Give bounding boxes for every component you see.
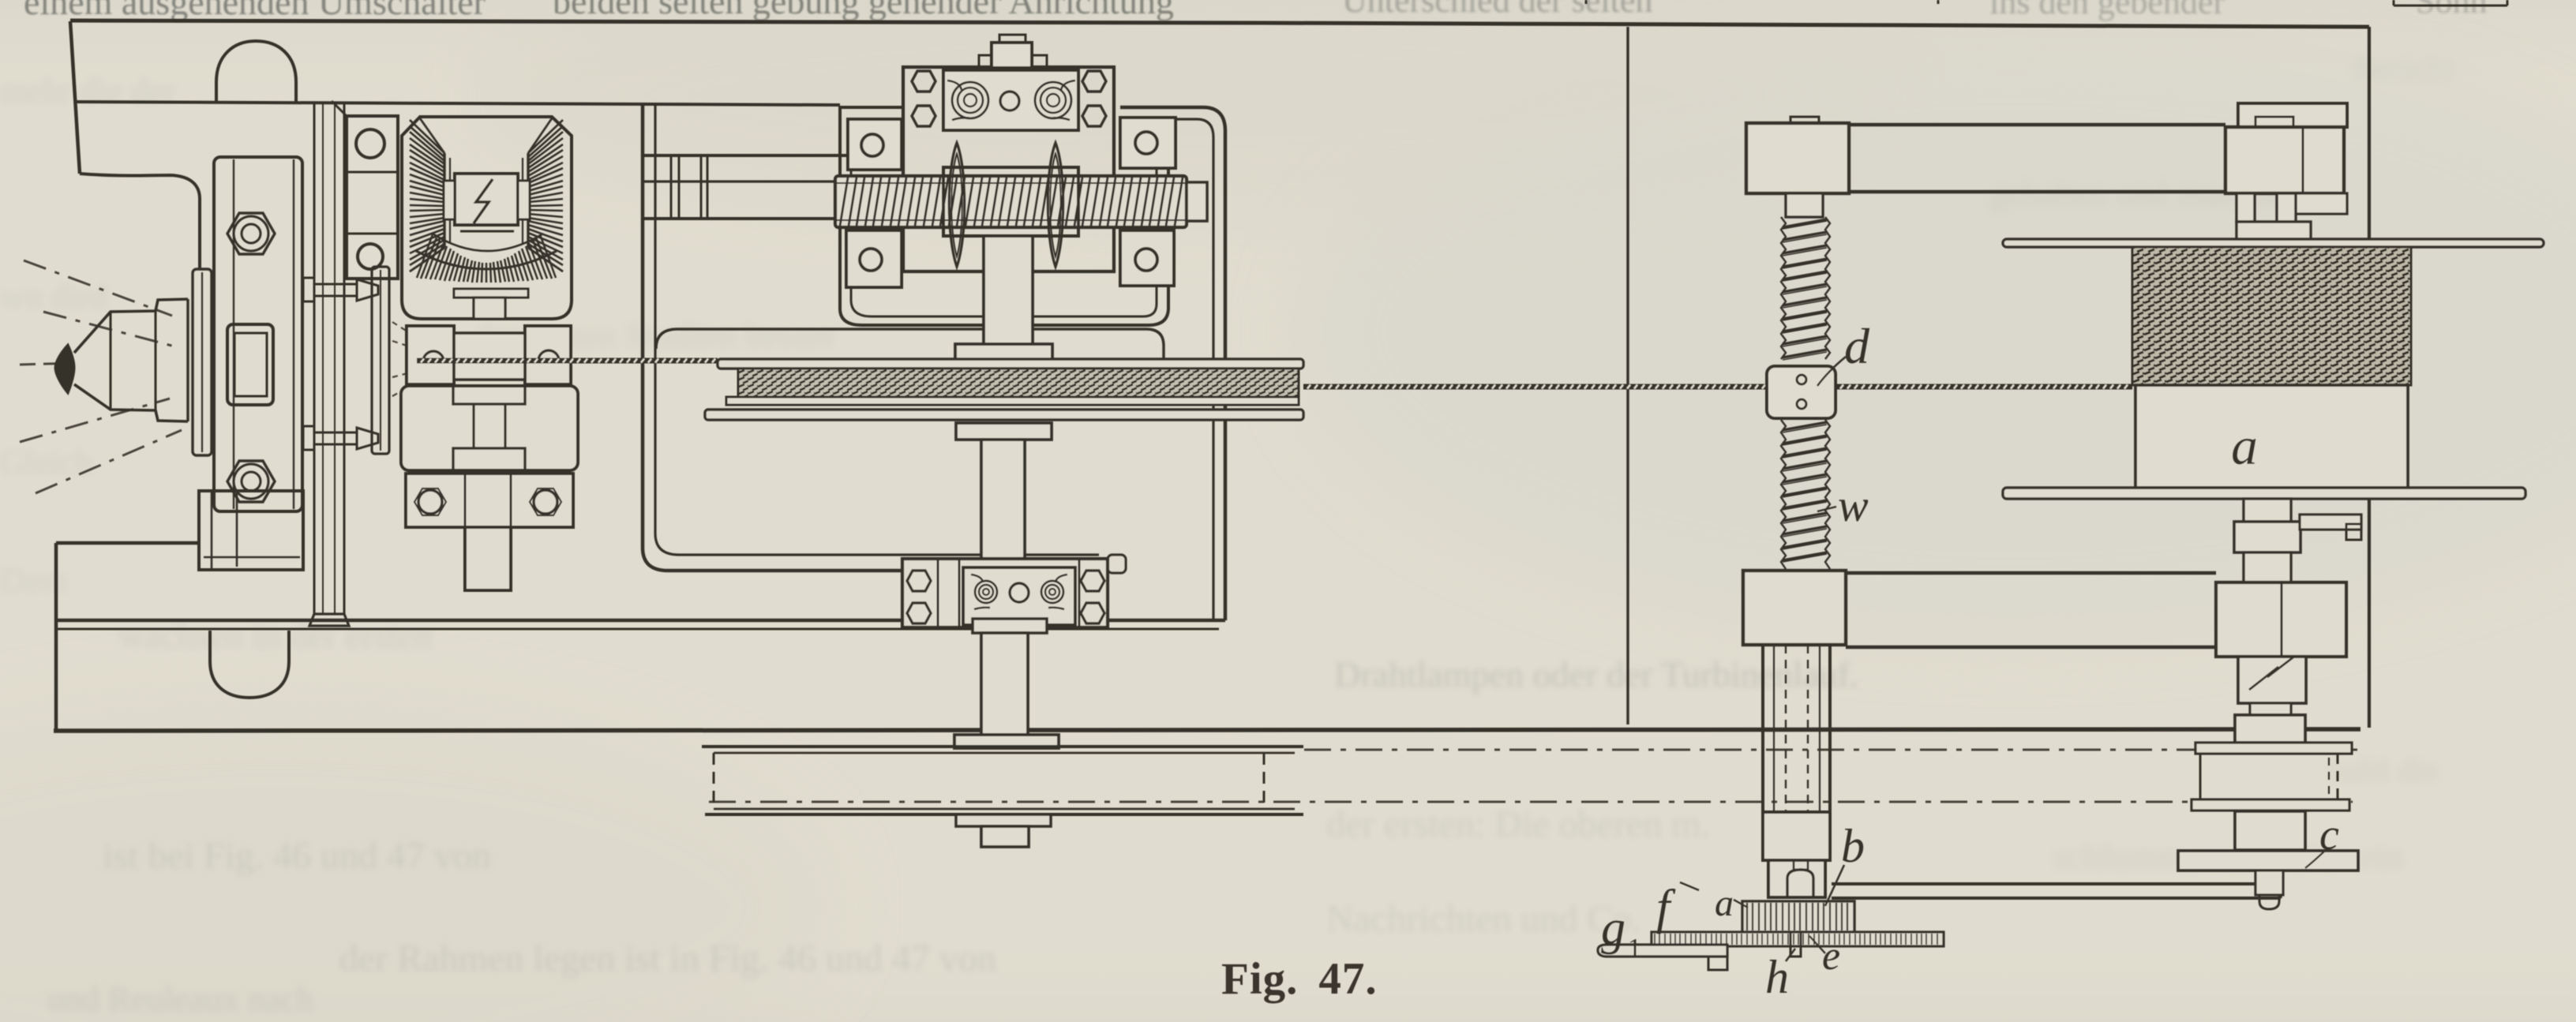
svg-text:der Rahmen legen ist in Fig. 4: der Rahmen legen ist in Fig. 46 und 47 v…: [339, 938, 996, 979]
svg-text:e: e: [1822, 934, 1840, 979]
svg-text:d: d: [1844, 318, 1870, 374]
svg-text:ins den gebender: ins den gebender: [1989, 0, 2225, 21]
svg-text:Drahtlampen oder der Turbinenl: Drahtlampen oder der Turbinenlauf.: [1334, 654, 1858, 694]
svg-text:Unterschied der selten: Unterschied der selten: [1342, 0, 1652, 20]
svg-text:1: 1: [1628, 934, 1641, 963]
svg-text:h: h: [1765, 951, 1789, 1003]
svg-text:w: w: [1838, 480, 1869, 531]
svg-text:g: g: [1601, 901, 1625, 955]
svg-text:Nachrichten und Co.: Nachrichten und Co.: [1326, 898, 1641, 940]
svg-text:mehr die der: mehr die der: [0, 72, 176, 110]
svg-text:b: b: [1841, 820, 1865, 872]
svg-text:und Reuleaux nach: und Reuleaux nach: [47, 979, 313, 1018]
svg-text:Sonn: Sonn: [2416, 0, 2487, 21]
svg-text:a: a: [1715, 882, 1734, 924]
svg-text:der ersten: Die oberen m.: der ersten: Die oberen m.: [1326, 803, 1710, 845]
svg-text:bald die: bald die: [2329, 751, 2440, 789]
svg-text:a: a: [2231, 416, 2258, 476]
svg-text:ist bei Fig. 46 und 47 von: ist bei Fig. 46 und 47 von: [103, 835, 491, 877]
svg-text:Gleich: Gleich: [0, 443, 92, 481]
svg-text:wn dird: wn dird: [0, 277, 107, 316]
svg-text:beiden selten gebung gehender: beiden selten gebung gehender Anrichtung: [553, 0, 1174, 21]
